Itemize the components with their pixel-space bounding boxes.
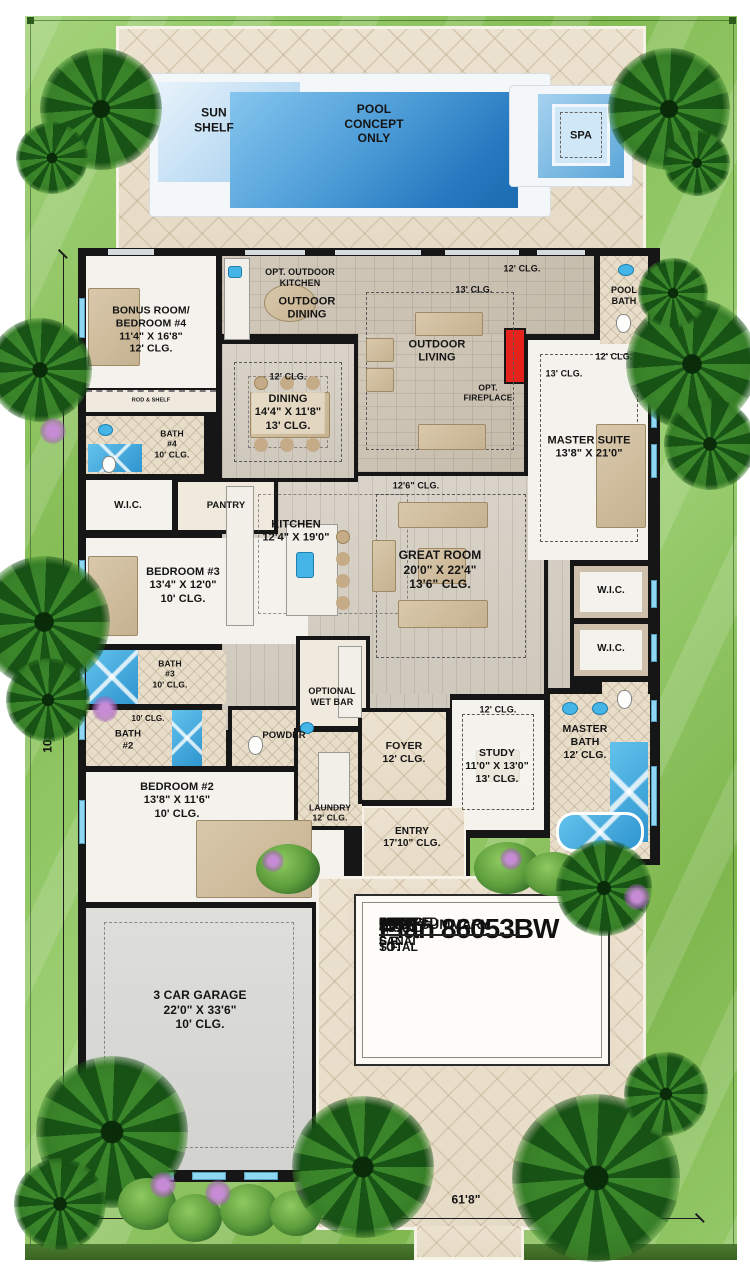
flower-shrub	[92, 696, 118, 722]
lanai-sofa2	[418, 424, 486, 450]
opt-outdoor-kitchen-label: OPT. OUTDOOR KITCHEN	[265, 267, 335, 289]
master-suite-label: MASTER SUITE 13'8" X 21'0"	[547, 435, 630, 462]
master-sink2	[592, 702, 608, 715]
bath2-label: BATH #2	[115, 728, 141, 751]
bath3-label: BATH #3 10' CLG.	[153, 658, 188, 689]
lanai-opening	[445, 250, 519, 255]
floor-plan-rendering: SUN SHELF POOL CONCEPT ONLY SPA	[0, 0, 750, 1264]
palm-tree	[292, 1096, 434, 1238]
lot-line-right	[733, 20, 734, 1246]
powder-toilet	[248, 736, 263, 755]
sun-shelf-label: SUN SHELF	[194, 105, 234, 134]
great-room-label: GREAT ROOM 20'0" X 22'4" 13'6" CLG.	[399, 548, 482, 592]
bonus-window	[108, 249, 154, 255]
pantry-label: PANTRY	[207, 500, 246, 512]
garage-window	[244, 1172, 278, 1180]
lanai-opening	[335, 250, 421, 255]
entry-label: ENTRY 17'10" CLG.	[383, 826, 440, 850]
bath2-clg-label: 10' CLG.	[132, 714, 165, 724]
wic-left-label: W.I.C.	[114, 500, 142, 512]
dining-chairs	[254, 376, 268, 390]
garage-window	[192, 1172, 226, 1180]
window	[651, 700, 657, 722]
bath4-sink	[98, 424, 113, 436]
opt-fireplace-label: OPT. FIREPLACE	[463, 383, 512, 404]
kitchen-label: KITCHEN 12'4" X 19'0"	[262, 519, 329, 546]
bath4-toilet	[102, 456, 116, 473]
outdoor-living-label: OUTDOOR LIVING	[409, 339, 466, 366]
flower-shrub	[40, 418, 66, 444]
master-sink1	[562, 702, 578, 715]
master-bath-label: MASTER BATH 12' CLG.	[563, 723, 608, 761]
flower-shrub	[150, 1172, 176, 1198]
window	[651, 444, 657, 478]
area-total-value: 4,990 S.F.	[379, 919, 409, 957]
dining-tray-label: 12' CLG.	[270, 372, 307, 383]
lanai-clg-label: 12' CLG.	[504, 264, 541, 275]
lot-line-top	[30, 20, 733, 21]
window	[651, 634, 657, 662]
flower-shrub	[500, 848, 522, 870]
kitchen-sink	[296, 552, 314, 578]
outdoor-living-clg-label: 13' CLG.	[456, 285, 493, 296]
pool-bath-toilet	[616, 314, 631, 333]
laundry-label: LAUNDRY 12' CLG.	[309, 803, 351, 824]
palm-tree	[6, 658, 90, 742]
pool-concept-label: POOL CONCEPT ONLY	[344, 102, 403, 146]
lot-post	[27, 17, 34, 24]
study-tray-label: 12' CLG.	[480, 705, 517, 716]
pool-bath-sink	[618, 264, 634, 276]
palm-tree	[664, 130, 730, 196]
outdoor-dining-label: OUTDOOR DINING	[279, 296, 336, 323]
flower-shrub	[205, 1180, 231, 1206]
lanai-chair2	[366, 368, 394, 392]
foyer-label: FOYER 12' CLG.	[383, 740, 426, 766]
pool-bath-label: POOL BATH	[611, 285, 637, 307]
bedroom2-label: BEDROOM #2 13'8" X 11'6" 10' CLG.	[140, 781, 214, 821]
palm-tree	[14, 1158, 106, 1250]
window	[651, 580, 657, 608]
palm-tree	[664, 398, 750, 490]
bedroom3-label: BEDROOM #3 13'4" X 12'0" 10' CLG.	[146, 566, 220, 606]
lanai-sofa	[415, 312, 483, 336]
rod-shelf-label: ROD & SHELF	[132, 398, 170, 405]
island-stools	[336, 530, 350, 544]
window	[79, 800, 85, 844]
spa-label: SPA	[570, 129, 592, 142]
flower-shrub	[624, 884, 650, 910]
dining-label: DINING 14'4" X 11'8" 13' CLG.	[252, 392, 325, 434]
washer-dryer	[318, 752, 350, 808]
palm-tree	[624, 1052, 708, 1136]
bonus-room-label: BONUS ROOM/ BEDROOM #4 11'4" X 16'8" 12'…	[112, 304, 190, 355]
wic-r1-label: W.I.C.	[597, 585, 625, 597]
lot-width-label: 61'8"	[451, 1193, 480, 1208]
bath2-shower	[172, 710, 202, 766]
master-clg13-label: 13' CLG.	[546, 369, 583, 380]
study-label: STUDY 11'0" X 13'0" 13' CLG.	[463, 746, 531, 786]
window	[79, 298, 85, 338]
palm-tree	[16, 122, 88, 194]
flower-shrub	[262, 850, 284, 872]
lanai-opening	[245, 250, 305, 255]
bath4-label: BATH #4 10' CLG.	[155, 428, 190, 459]
outdoor-kitchen-sink	[228, 266, 242, 278]
great-chair	[372, 540, 396, 592]
driveway-stem	[414, 1226, 524, 1260]
powder-label: POWDER	[262, 730, 305, 742]
toilet	[617, 690, 632, 709]
plan-card-inner: Plan 86053BW AREA SUMMARY LIVING 3,382 S…	[362, 902, 602, 1058]
lanai-opening	[537, 250, 585, 255]
great-tray-label: 12'6" CLG.	[393, 481, 439, 492]
window	[651, 766, 657, 826]
garage-label: 3 CAR GARAGE 22'0" X 33'6" 10' CLG.	[153, 988, 246, 1032]
lot-post	[729, 17, 736, 24]
great-sofa	[398, 502, 488, 528]
wic-r2-label: W.I.C.	[597, 643, 625, 655]
palm-tree	[638, 258, 708, 328]
wet-bar-label: OPTIONAL WET BAR	[308, 686, 355, 708]
great-sofa2	[398, 600, 488, 628]
lanai-chair	[366, 338, 394, 362]
